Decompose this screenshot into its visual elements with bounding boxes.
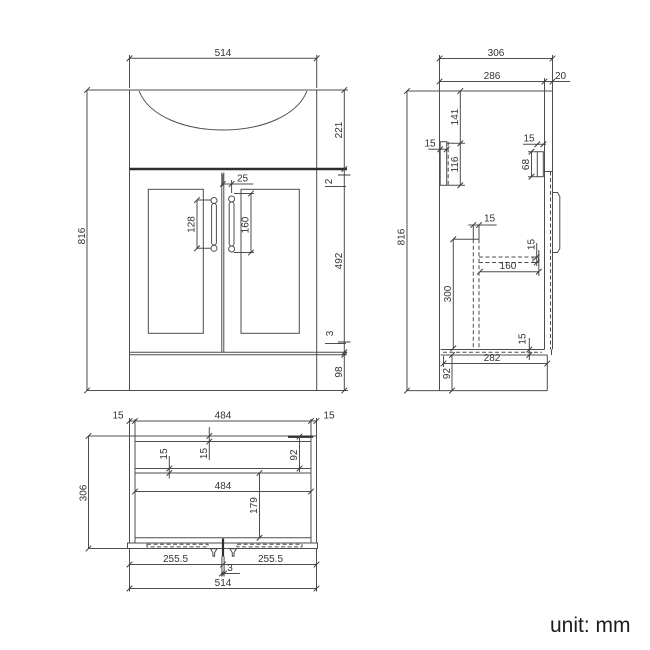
door-height-dim: 492 — [334, 252, 345, 269]
plan-left-wall-dim: 15 — [112, 411, 124, 422]
plan-inner-width-dim: 484 — [215, 481, 232, 492]
side-plinth-dim: 92 — [442, 368, 453, 380]
plan-dimension-ticks — [86, 418, 320, 591]
bracket-height-dim: 116 — [450, 156, 461, 172]
plan-right-wall-dim: 15 — [323, 411, 335, 422]
front-cabinet-outline — [130, 90, 317, 391]
right-door-panel — [241, 189, 299, 333]
door-thickness-dim: 20 — [555, 71, 567, 82]
front-dimension-ticks — [84, 56, 350, 394]
handle-offset-dim: 25 — [237, 174, 249, 185]
counter-gap-dim: 2 — [324, 178, 335, 184]
plan-inner-width-top-dim: 484 — [215, 411, 232, 422]
divider-width-dim: 15 — [484, 214, 496, 225]
shelf-depth-dim: 160 — [500, 261, 517, 272]
bottom-depth-dim: 282 — [484, 353, 501, 364]
front-depth-dim: 179 — [249, 497, 260, 514]
side-dimension-labels: 306 286 20 816 141 15 116 15 68 15 300 1… — [397, 48, 567, 379]
left-door-width-dim: 255.5 — [163, 554, 188, 565]
back-wall-dim: 15 — [199, 448, 210, 460]
bracket-offset-dim: 141 — [450, 108, 461, 125]
vanity-technical-drawing-page: 514 816 221 2 492 3 98 25 128 160 306 28… — [0, 0, 650, 650]
left-fixing-clip — [211, 549, 218, 556]
plan-depth-dim: 306 — [79, 484, 90, 501]
side-handle-profile — [553, 193, 560, 253]
unit-label: unit: mm — [550, 614, 631, 637]
right-door-handle — [229, 196, 235, 252]
front-bracket-height-dim: 68 — [521, 159, 532, 171]
bottom-gap-dim: 3 — [325, 330, 336, 336]
divider-height-dim: 300 — [443, 285, 454, 302]
right-fixing-clip — [230, 549, 237, 556]
plan-view: 15 484 15 306 15 15 92 484 179 255.5 3 2… — [79, 411, 335, 592]
plan-dimension-lines — [89, 418, 317, 592]
carcass-depth-dim: 286 — [484, 71, 501, 82]
side-elevation-view: 306 286 20 816 141 15 116 15 68 15 300 1… — [397, 48, 571, 393]
basin-curve — [139, 91, 307, 130]
side-depth-dim: 306 — [488, 48, 505, 59]
plinth-height-dim: 98 — [334, 366, 345, 378]
front-dimension-lines — [87, 55, 348, 391]
left-door-panel — [148, 189, 203, 333]
basin-height-dim: 221 — [334, 121, 345, 138]
front-width-dim: 514 — [215, 48, 232, 59]
technical-drawing: 514 816 221 2 492 3 98 25 128 160 306 28… — [0, 0, 650, 650]
rail-thickness-dim: 15 — [159, 448, 170, 460]
front-elevation-view: 514 816 221 2 492 3 98 25 128 160 — [77, 48, 351, 393]
center-gap-dim: 3 — [227, 563, 233, 574]
front-bracket-width-dim: 15 — [523, 134, 535, 145]
front-height-dim: 816 — [77, 227, 88, 244]
bracket-width-dim: 15 — [424, 139, 436, 150]
side-dimension-ticks — [404, 56, 555, 394]
left-rim-hidden-edge — [147, 544, 208, 547]
right-door-width-dim: 255.5 — [258, 554, 283, 565]
front-bracket — [537, 152, 543, 177]
shelf-thickness-dim: 15 — [527, 239, 538, 251]
bottom-thickness-dim: 15 — [517, 333, 528, 345]
back-depth-dim: 92 — [289, 449, 300, 461]
door-edges — [130, 173, 348, 355]
side-height-dim: 816 — [397, 228, 408, 245]
plan-width-dim: 514 — [215, 578, 232, 589]
left-door-handle — [211, 198, 217, 252]
right-rim-hidden-edge — [237, 544, 302, 547]
left-handle-dim: 128 — [187, 216, 198, 233]
front-dimension-labels: 514 816 221 2 492 3 98 25 128 160 — [77, 48, 345, 378]
right-handle-dim: 160 — [241, 216, 252, 233]
